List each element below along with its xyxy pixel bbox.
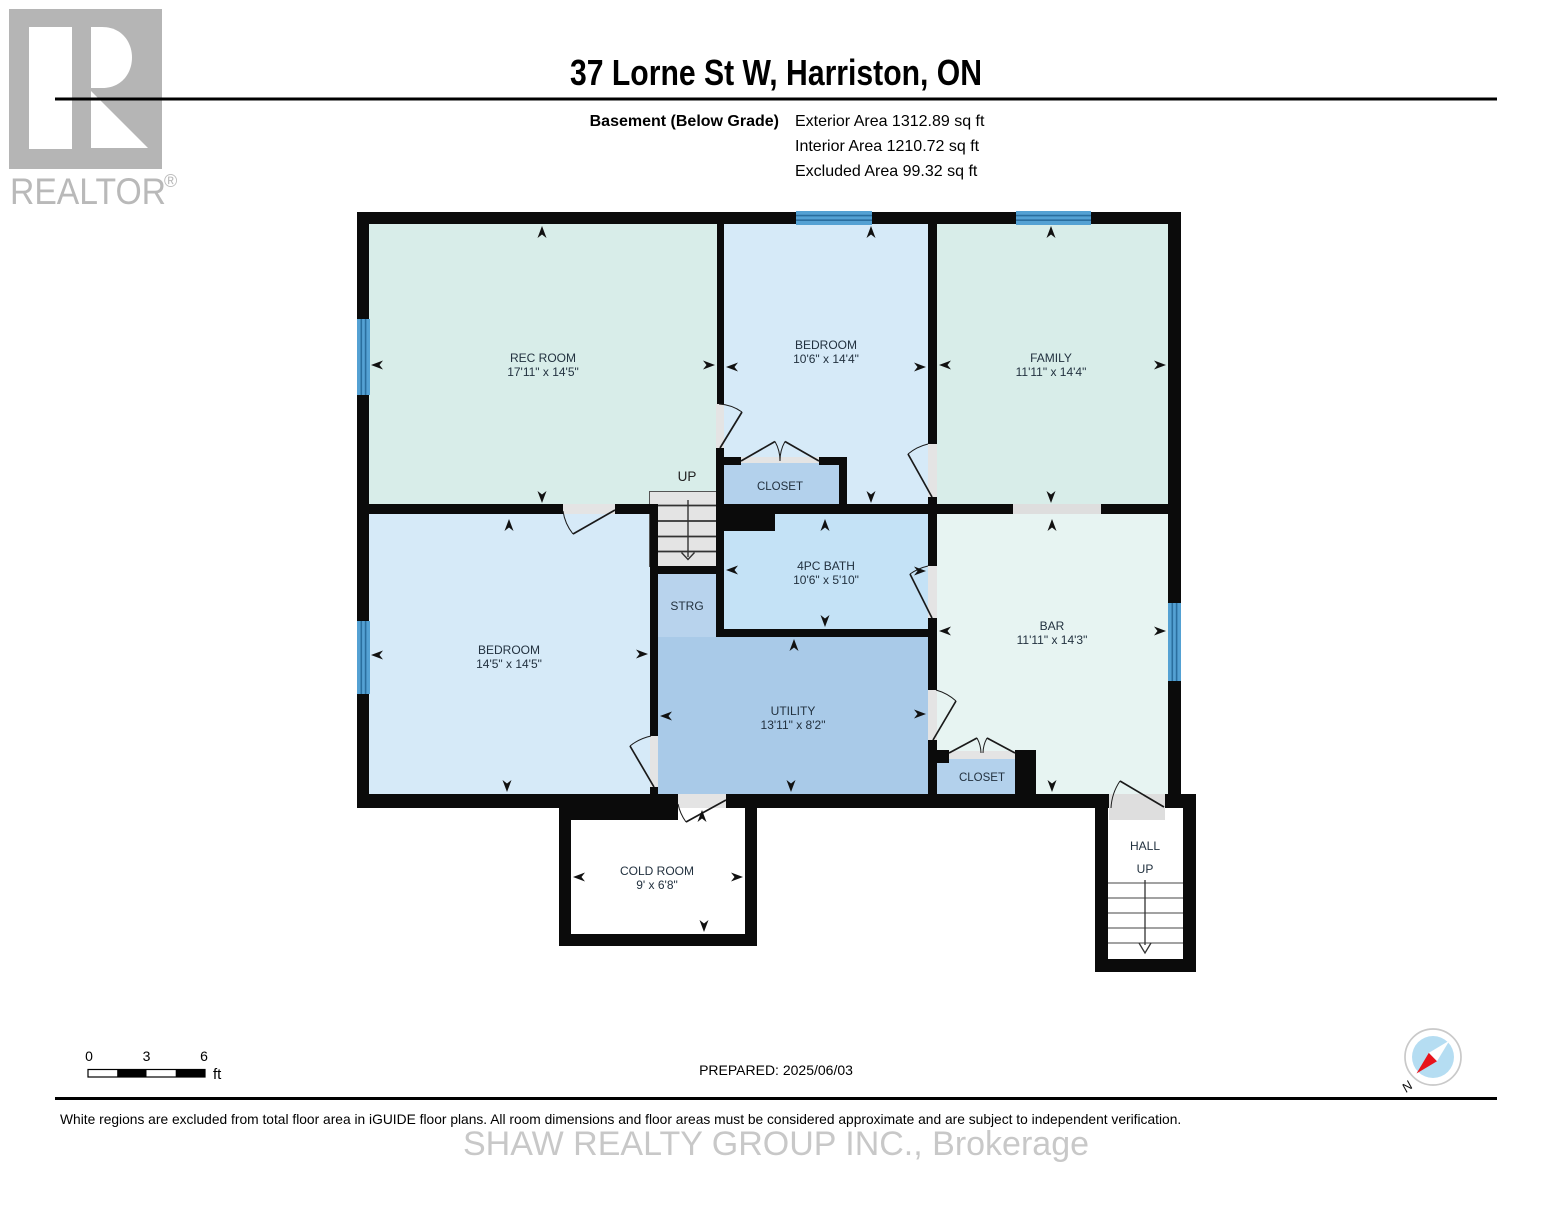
svg-text:14'5" x 14'5": 14'5" x 14'5" xyxy=(476,657,542,671)
svg-text:Exterior Area 1312.89 sq ft: Exterior Area 1312.89 sq ft xyxy=(795,113,985,130)
svg-text:BEDROOM: BEDROOM xyxy=(795,338,857,352)
svg-text:BAR: BAR xyxy=(1040,619,1065,633)
svg-text:FAMILY: FAMILY xyxy=(1030,351,1072,365)
svg-text:HALL: HALL xyxy=(1130,839,1160,853)
svg-text:UP: UP xyxy=(678,469,697,484)
svg-text:Excluded Area 99.32 sq ft: Excluded Area 99.32 sq ft xyxy=(795,163,978,180)
svg-text:11'11" x 14'3": 11'11" x 14'3" xyxy=(1017,633,1088,647)
svg-text:3: 3 xyxy=(143,1048,151,1064)
svg-text:6: 6 xyxy=(200,1048,208,1064)
svg-text:Basement (Below Grade): Basement (Below Grade) xyxy=(590,113,779,130)
svg-text:UTILITY: UTILITY xyxy=(771,704,816,718)
svg-text:10'6" x 14'4": 10'6" x 14'4" xyxy=(793,352,859,366)
svg-text:Interior Area 1210.72 sq ft: Interior Area 1210.72 sq ft xyxy=(795,138,980,155)
svg-text:®: ® xyxy=(164,171,177,191)
svg-text:SHAW REALTY GROUP INC., Broker: SHAW REALTY GROUP INC., Brokerage xyxy=(463,1125,1089,1163)
svg-text:13'11" x 8'2": 13'11" x 8'2" xyxy=(761,718,826,732)
svg-text:37 Lorne St W, Harriston, ON: 37 Lorne St W, Harriston, ON xyxy=(570,52,982,93)
svg-text:REALTOR: REALTOR xyxy=(10,171,166,212)
svg-text:CLOSET: CLOSET xyxy=(757,481,803,493)
svg-text:4PC BATH: 4PC BATH xyxy=(797,559,855,573)
svg-text:11'11" x 14'4": 11'11" x 14'4" xyxy=(1016,365,1087,379)
svg-text:CLOSET: CLOSET xyxy=(959,772,1005,784)
svg-text:10'6" x 5'10": 10'6" x 5'10" xyxy=(793,573,859,587)
svg-text:9' x 6'8": 9' x 6'8" xyxy=(636,878,678,892)
svg-text:0: 0 xyxy=(85,1048,93,1064)
svg-text:BEDROOM: BEDROOM xyxy=(478,643,540,657)
svg-text:ft: ft xyxy=(213,1066,222,1083)
svg-text:17'11" x 14'5": 17'11" x 14'5" xyxy=(507,365,579,379)
svg-text:PREPARED: 2025/06/03: PREPARED: 2025/06/03 xyxy=(699,1062,853,1078)
svg-text:STRG: STRG xyxy=(670,599,703,613)
svg-text:REC ROOM: REC ROOM xyxy=(510,351,576,365)
svg-text:UP: UP xyxy=(1137,862,1154,876)
svg-text:COLD ROOM: COLD ROOM xyxy=(620,864,694,878)
